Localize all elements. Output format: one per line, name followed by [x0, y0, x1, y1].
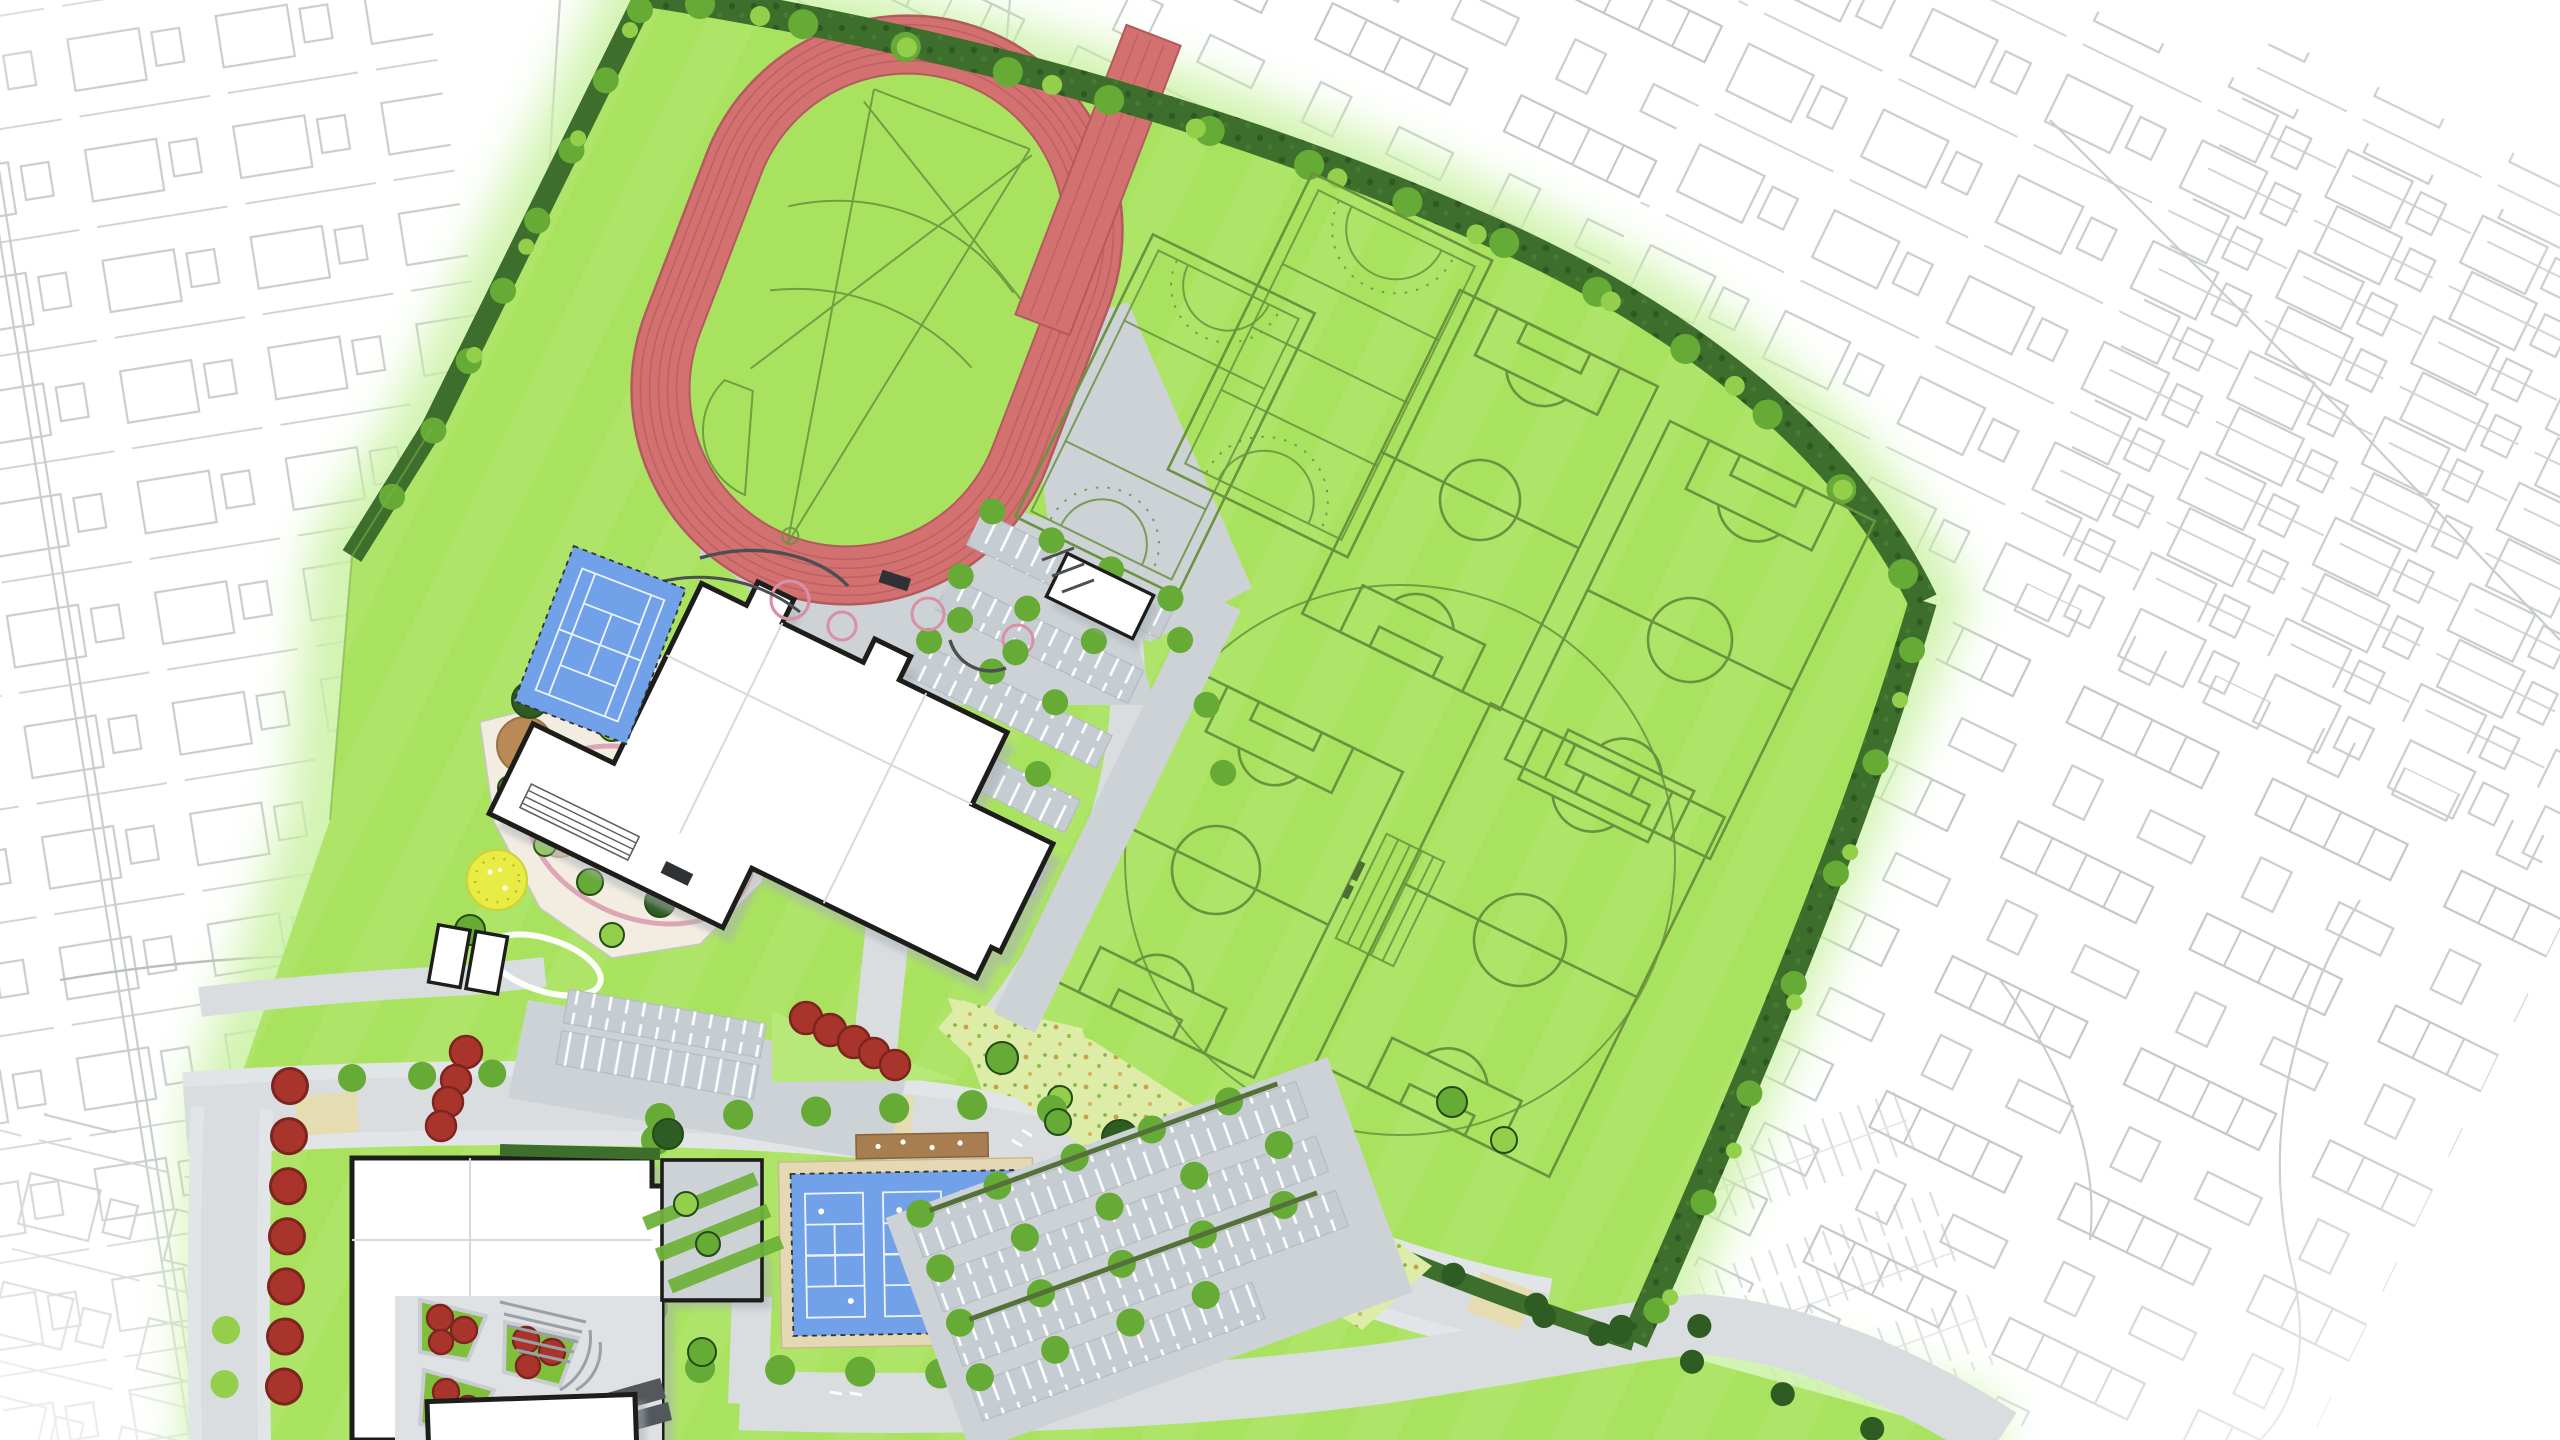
tree — [600, 923, 624, 947]
building-hedge — [500, 1150, 660, 1154]
masterplan-canvas — [0, 0, 2560, 1440]
ramp-wing — [642, 1160, 784, 1300]
plaza-link-road — [748, 1296, 752, 1404]
masterplan-svg — [0, 0, 2560, 1440]
secondary-building — [427, 1394, 647, 1440]
splash-play-circle — [467, 850, 527, 910]
